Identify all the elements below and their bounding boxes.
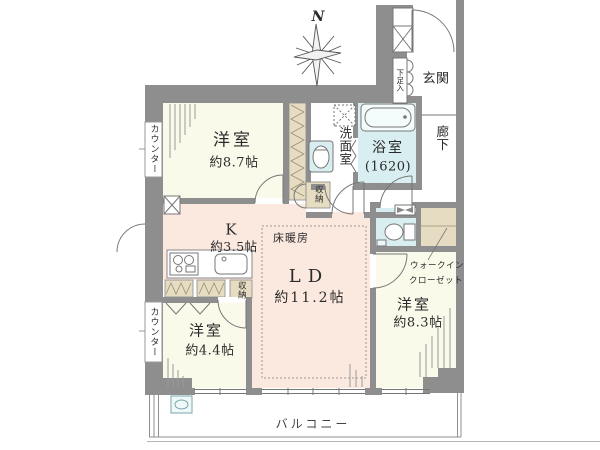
floorplan-drawing <box>0 0 600 450</box>
windows <box>195 388 430 395</box>
bedroom44-size: 約4.4帖 <box>185 345 234 358</box>
pillar-icon <box>164 196 180 214</box>
balcony-label: バルコニー <box>276 418 351 430</box>
bathroom-size: (1620) <box>365 161 411 174</box>
kitchen-name: K <box>225 223 238 238</box>
bedroom83-size: 約8.3帖 <box>393 317 442 330</box>
living-dining-size: 約11.2帖 <box>274 291 345 305</box>
kitchen-counter-icon <box>167 250 252 278</box>
hallway-label: 廊下 <box>435 125 448 151</box>
pipe-shaft-icon <box>393 8 413 52</box>
floor-heating-label: 床暖房 <box>273 233 309 244</box>
balcony-faucet-icon <box>171 396 192 413</box>
storage-kitchen-label: 収納 <box>237 281 246 299</box>
compass-icon <box>294 24 341 86</box>
washroom-label: 洗面室 <box>338 127 351 166</box>
wic-label-line2: クローゼット <box>409 277 463 286</box>
bedroom83-name: 洋室 <box>397 298 431 313</box>
counter-upper-label: カウンター <box>149 124 158 174</box>
entrance-label: 玄関 <box>422 73 449 86</box>
sink-icon <box>309 141 333 172</box>
bedroom87-size: 約8.7帖 <box>209 157 258 170</box>
living-dining-name: LD <box>289 268 329 286</box>
washer-pan-icon <box>334 105 355 126</box>
storage-hall-label: 収納 <box>314 185 323 203</box>
bedroom87-name: 洋室 <box>213 133 253 150</box>
counter-lower-label: カウンター <box>149 307 158 357</box>
floorplan: N 洋室 約8.7帖 洗面室 浴室 (1620) 玄関 下足入 廊下 収納 K … <box>0 0 600 450</box>
wic-label-line1: ウォークイン <box>410 262 464 271</box>
kitchen-size: 約3.5帖 <box>210 241 257 254</box>
bathroom-name: 浴室 <box>372 141 404 155</box>
bedroom44-name: 洋室 <box>189 324 223 339</box>
compass-north-label: N <box>312 10 325 24</box>
shoe-cabinet-label: 下足入 <box>396 69 404 92</box>
